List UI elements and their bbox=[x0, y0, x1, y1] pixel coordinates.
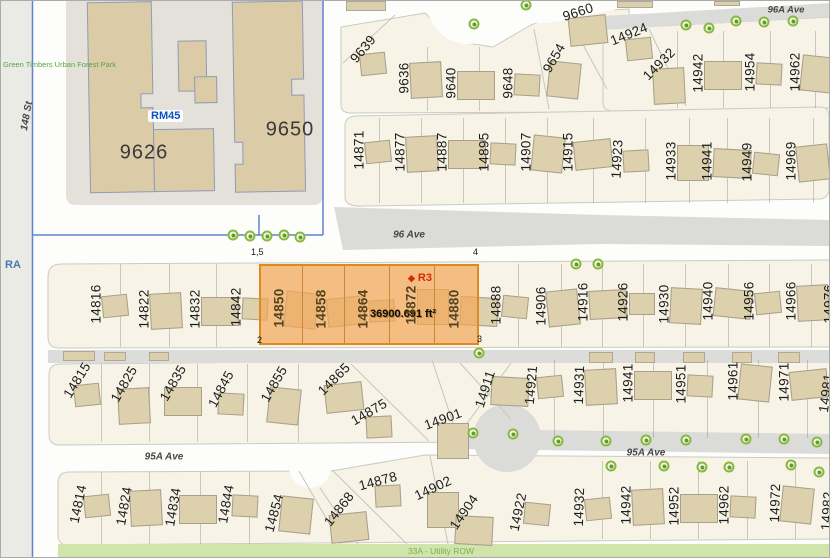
block-row4 bbox=[49, 357, 830, 445]
parcel-lot-line bbox=[434, 266, 435, 343]
utility-row-strip bbox=[58, 544, 830, 557]
selected-parcel-highlight[interactable] bbox=[259, 264, 479, 345]
culdesac-95a-bulb bbox=[289, 446, 331, 488]
park-edge-strip bbox=[1, 1, 32, 558]
rear-lane bbox=[48, 350, 830, 363]
parcel-lot-line bbox=[389, 266, 390, 343]
parcel-lot-line bbox=[344, 266, 345, 343]
parcel-lot-line bbox=[302, 266, 303, 343]
parcel-map: Green Timbers Urban Forest Park 148 St R… bbox=[0, 0, 830, 558]
block-row2 bbox=[345, 107, 829, 206]
block-96a bbox=[603, 17, 830, 111]
